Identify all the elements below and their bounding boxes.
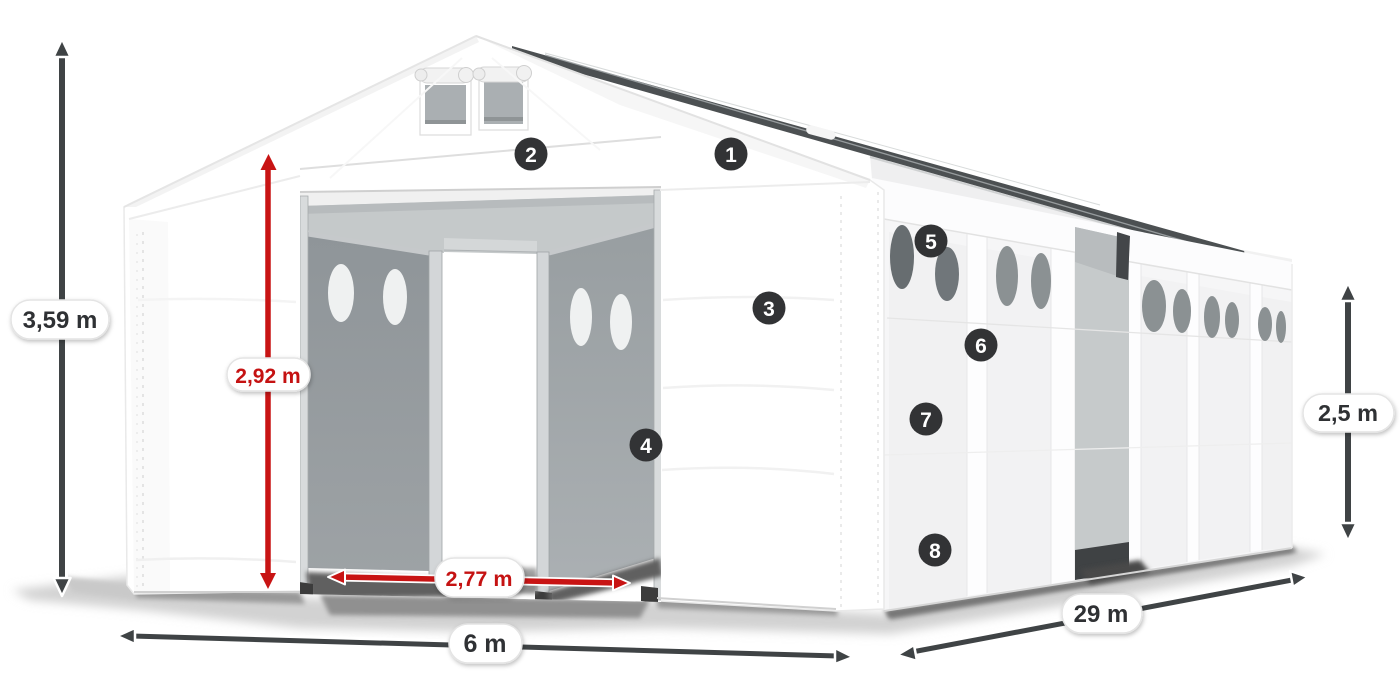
- svg-text:2,5 m: 2,5 m: [1318, 400, 1378, 426]
- svg-text:3: 3: [763, 298, 775, 321]
- svg-text:2,92 m: 2,92 m: [235, 365, 300, 388]
- svg-text:5: 5: [925, 231, 937, 254]
- svg-text:6 m: 6 m: [463, 630, 506, 658]
- svg-text:2,77 m: 2,77 m: [446, 567, 513, 591]
- svg-text:4: 4: [640, 435, 652, 458]
- svg-text:7: 7: [920, 409, 932, 432]
- svg-text:2: 2: [525, 144, 537, 167]
- svg-text:8: 8: [929, 540, 941, 563]
- svg-text:6: 6: [975, 335, 987, 358]
- svg-text:3,59 m: 3,59 m: [23, 307, 98, 334]
- svg-text:29 m: 29 m: [1074, 601, 1129, 628]
- svg-text:1: 1: [725, 144, 737, 167]
